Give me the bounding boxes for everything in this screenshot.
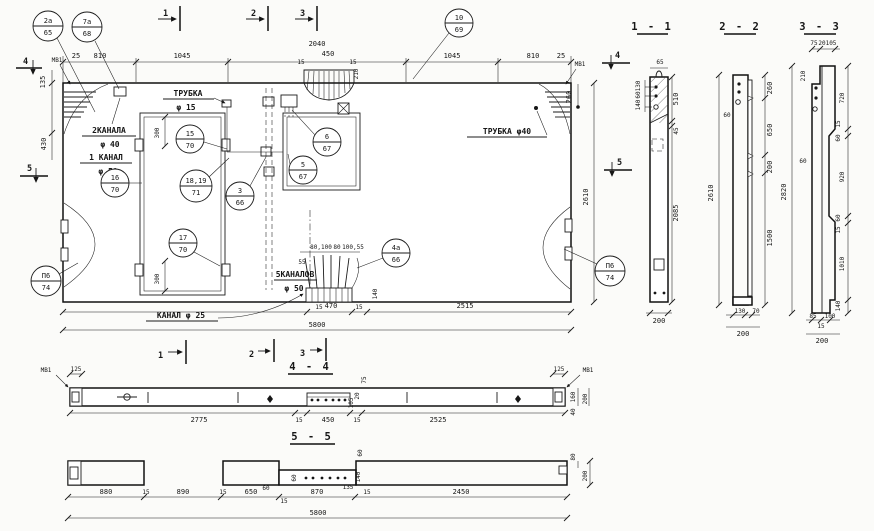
dim: 15 [355,304,363,311]
dim: 5800 [310,509,327,517]
dim: 60 [835,214,842,222]
section-2-2: 2 - 2 60 2610 260 650 200 1500 130 70 20… [707,21,774,338]
dim: 2450 [453,488,470,496]
svg-text:66: 66 [392,256,400,264]
note-1kanal: 1 КАНАЛ [89,153,123,162]
dim: 300 [154,127,161,138]
svg-text:15: 15 [186,130,194,138]
svg-text:16: 16 [111,174,119,182]
svg-text:67: 67 [299,173,307,181]
note-trubka15-d: φ 15 [176,103,195,112]
dim: 45 [673,127,680,135]
dim: 200 [582,470,589,481]
svg-text:70: 70 [179,246,187,254]
mv1-label-top-left: МВ1 [52,57,70,84]
dim: 140 [372,288,379,299]
dim: 880 [100,488,113,496]
svg-text:66: 66 [236,199,244,207]
section-title: 4 - 4 [289,361,331,373]
dim: 1010 [839,256,846,271]
dim: 2820 [780,184,788,201]
callout-10-69: 1069 [413,9,473,79]
dim: 5800 [309,321,326,329]
dim: 80 [570,453,577,461]
dim: 510 [672,93,680,106]
svg-text:4: 4 [615,51,621,61]
dim: 75 [810,40,818,47]
note-trubka15: ТРУБКА [174,89,203,98]
dim: 15 [835,226,842,234]
svg-text:5: 5 [27,164,33,174]
section-3-3: 3 - 3 75 20 105 210 2820 60 720 15 60 92… [780,21,851,345]
svg-text:68: 68 [83,30,91,38]
svg-text:2: 2 [251,9,257,19]
dim: 130 [635,80,642,91]
dim: 1045 [174,52,191,60]
svg-text:3: 3 [300,349,306,359]
dim: 1500 [766,230,774,247]
blueprint-svg: 25 810 1045 2040 15 450 15 210 1045 810 … [0,0,874,531]
section-title: 3 - 3 [799,21,841,33]
dim: 200 [766,161,774,174]
svg-text:2: 2 [249,350,255,360]
note-kanal25: КАНАЛ φ 25 [157,311,205,320]
section-title: 2 - 2 [719,21,761,33]
svg-text:74: 74 [606,274,614,282]
dim: 450 [322,50,335,58]
dim: 105 [348,397,355,408]
dim: 15 [295,417,303,424]
svg-text:18,19: 18,19 [185,177,206,185]
dim: 40 [570,408,577,416]
dim: 810 [527,52,540,60]
section-title: 1 - 1 [631,21,673,33]
dim: 15 [835,120,842,128]
section-4-4: 4 - 4 125 МВ1 125 МВ1 2775 15 450 15 252… [41,361,594,424]
svg-text:10: 10 [455,14,463,22]
dim: 650 [245,488,258,496]
svg-text:МВ1: МВ1 [575,61,586,68]
mark-1-bottom: 1 [158,340,186,364]
svg-text:1: 1 [163,9,169,19]
dim: 260 [766,82,774,95]
dim: 130 [735,308,746,315]
callout-p6-right: П674 [564,249,625,286]
dim: 60 [262,485,270,492]
svg-text:17: 17 [179,234,187,242]
note-2kanala: 2КАНАЛА [92,126,126,135]
dim: 60 [799,158,807,165]
svg-text:П6: П6 [606,262,614,270]
dim: 15 [349,59,357,66]
blueprint-page: 25 810 1045 2040 15 450 15 210 1045 810 … [0,0,874,531]
svg-text:7а: 7а [83,18,91,26]
svg-text:6: 6 [325,133,329,141]
dim: 15 [363,489,371,496]
dim: 60 [357,449,364,457]
dim: 450 [322,416,335,424]
dim: 15 [315,304,323,311]
dim: 160 [570,391,577,402]
note-5kanalov-d: φ 50 [284,284,303,293]
dim: 15 [353,417,361,424]
dim: 125 [554,366,565,373]
dim: 2610 [707,185,715,202]
mv1-label: МВ1 [41,367,52,374]
dim: 140 [835,300,842,311]
dim: 20 [354,392,361,400]
dim: 125 [71,366,82,373]
dim: 55 [298,259,306,266]
mark-1-top: 1 [158,6,180,31]
svg-text:70: 70 [111,186,119,194]
note-trubka40: ТРУБКА φ40 [483,127,531,136]
svg-text:71: 71 [192,189,200,197]
dim: 100 [825,313,836,320]
dim: 210 [800,70,807,81]
trubka40-point [534,106,538,110]
dim: 200 [737,330,750,338]
dim: 135 [343,484,354,491]
dim: 2610 [582,189,590,206]
dim: 140 [355,471,362,482]
svg-text:70: 70 [186,142,194,150]
mark-3-bottom: 3 [300,338,326,361]
svg-text:5: 5 [617,158,623,168]
dim: 430 [40,138,48,151]
svg-text:5: 5 [301,161,305,169]
dim: 65 [656,59,664,66]
mv1-label: МВ1 [583,367,594,374]
mark-4-left: 4 [16,57,42,74]
svg-text:П6: П6 [42,272,50,280]
dim: 105 [826,40,837,47]
svg-text:1: 1 [158,351,164,361]
dim: 60 [723,112,731,119]
dim: 810 [94,52,107,60]
dim: 140 [635,99,642,110]
dim: 60 [635,91,642,99]
note-2kanala-d: φ 40 [100,140,119,149]
dim: 135 [39,76,47,89]
mark-3-top: 3 [295,6,317,31]
dim: 470 [325,302,338,310]
dim: 75 [361,376,368,384]
svg-text:65: 65 [44,29,52,37]
dim: 260 [565,91,573,104]
callout-7a-68: 7а68 [72,12,119,89]
dim: 60 [291,474,298,482]
dim: 890 [177,488,190,496]
note-5kanalov: 5КАНАЛОВ [276,270,315,279]
section-title: 5 - 5 [291,431,333,443]
svg-text:3: 3 [238,187,242,195]
dim: 15 [297,59,305,66]
dim: 15 [817,323,825,330]
dim: 2085 [672,205,680,222]
dim: 85 [809,313,817,320]
svg-text:74: 74 [42,284,50,292]
dim: 210 [353,68,360,79]
dim: 1045 [444,52,461,60]
mark-5-right: 5 [604,158,632,176]
dim: 25 [72,52,80,60]
dim: 70 [752,308,760,315]
dim: 200 [653,317,666,325]
dim: 2040 [309,40,326,48]
mark-5-left: 5 [20,164,48,182]
svg-text:3: 3 [300,9,306,19]
dim: 15 [280,498,288,505]
dim: 25 [557,52,565,60]
dim: 100,55 [342,244,364,251]
dim: 80 [333,244,341,251]
dim: 80,100 [310,244,332,251]
dim: 300 [154,273,161,284]
dim: 650 [766,124,774,137]
dim: 870 [311,488,324,496]
dim: 60 [835,134,842,142]
svg-text:67: 67 [323,145,331,153]
dim: 720 [839,92,846,103]
dim: 920 [839,171,846,182]
main-plan [61,70,572,302]
mark-2-top: 2 [246,6,268,31]
dim: 200 [816,337,829,345]
dim: 2775 [191,416,208,424]
dim: 2515 [457,302,474,310]
section-5-5: 5 - 5 880 15 890 15 650 15 870 135 15 24… [65,431,593,521]
dim: 2525 [430,416,447,424]
svg-text:69: 69 [455,26,463,34]
mark-4-right: 4 [602,51,630,69]
mark-2-bottom: 2 [249,339,274,362]
svg-text:4: 4 [23,57,29,67]
section-1-1: 1 - 1 65 130 60 140 510 45 2085 200 [631,21,680,325]
dim: 200 [582,393,589,404]
svg-text:4а: 4а [392,244,400,252]
dim: 15 [219,489,227,496]
svg-text:2а: 2а [44,17,52,25]
dim: 15 [142,489,150,496]
svg-text:МВ1: МВ1 [52,57,63,64]
